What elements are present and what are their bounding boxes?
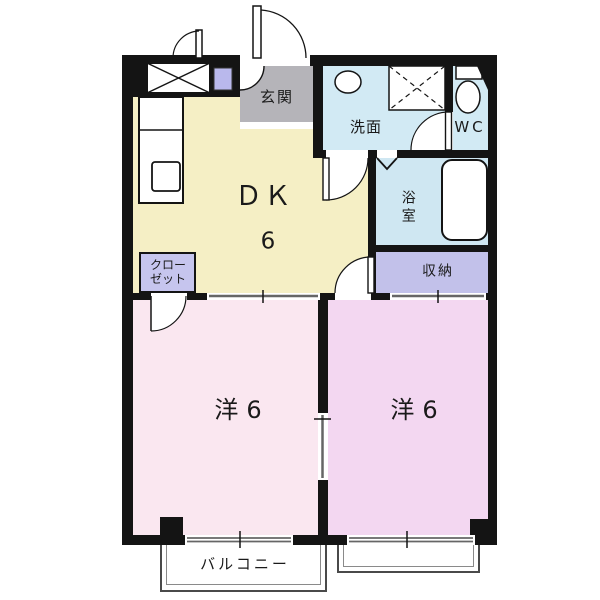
wc-label: WC [454, 119, 485, 136]
closet-door-icon [151, 296, 186, 331]
floor-plan: 玄関 洗面 WC 浴室 収納 クロー ゼット ＤＫ 6 洋6 洋6 バルコニー [0, 0, 600, 600]
western-room-right-label: 洋6 [390, 397, 445, 423]
small-door-icon [173, 30, 202, 58]
balcony-label: バルコニー [200, 556, 290, 573]
dk-size-label: 6 [261, 229, 276, 254]
dk-label: ＤＫ [235, 182, 293, 212]
meter-box [214, 68, 232, 90]
closet-label-line1: クロー [150, 258, 186, 272]
washroom-door-gap [326, 150, 368, 158]
storage-slider-icon [390, 290, 486, 303]
dk-right-room-door-icon [335, 257, 374, 293]
toilet-icon [456, 66, 482, 113]
wc-door-icon [411, 112, 452, 150]
bathtub-icon [442, 160, 487, 240]
storage-label: 収納 [422, 264, 454, 279]
genkan-door-swing-icon [240, 66, 264, 90]
right-room-window-icon [347, 531, 475, 548]
dk-left-room-slider-icon [207, 290, 320, 303]
bath-door-gap [377, 150, 397, 158]
dk-room-door-gap [335, 293, 371, 300]
closet-label: クロー ゼット [150, 258, 186, 286]
left-room-window-icon [185, 531, 293, 548]
plan-linework [0, 0, 600, 600]
bath-folding-door-icon [377, 158, 397, 169]
entrance-door-icon [253, 6, 306, 58]
genkan-label: 玄関 [260, 89, 294, 106]
rooms-slider-icon [314, 413, 331, 480]
sink-icon [335, 71, 361, 93]
western-room-left-label: 洋6 [214, 397, 269, 423]
washroom-door-icon [323, 158, 368, 200]
washroom-label: 洗面 [350, 119, 382, 136]
shaft-box-icon [147, 63, 210, 93]
kitchen-counter-icon [139, 97, 183, 203]
bathroom-label: 浴室 [399, 190, 414, 226]
closet-label-line2: ゼット [150, 272, 186, 286]
washer-pan-icon [389, 66, 445, 110]
